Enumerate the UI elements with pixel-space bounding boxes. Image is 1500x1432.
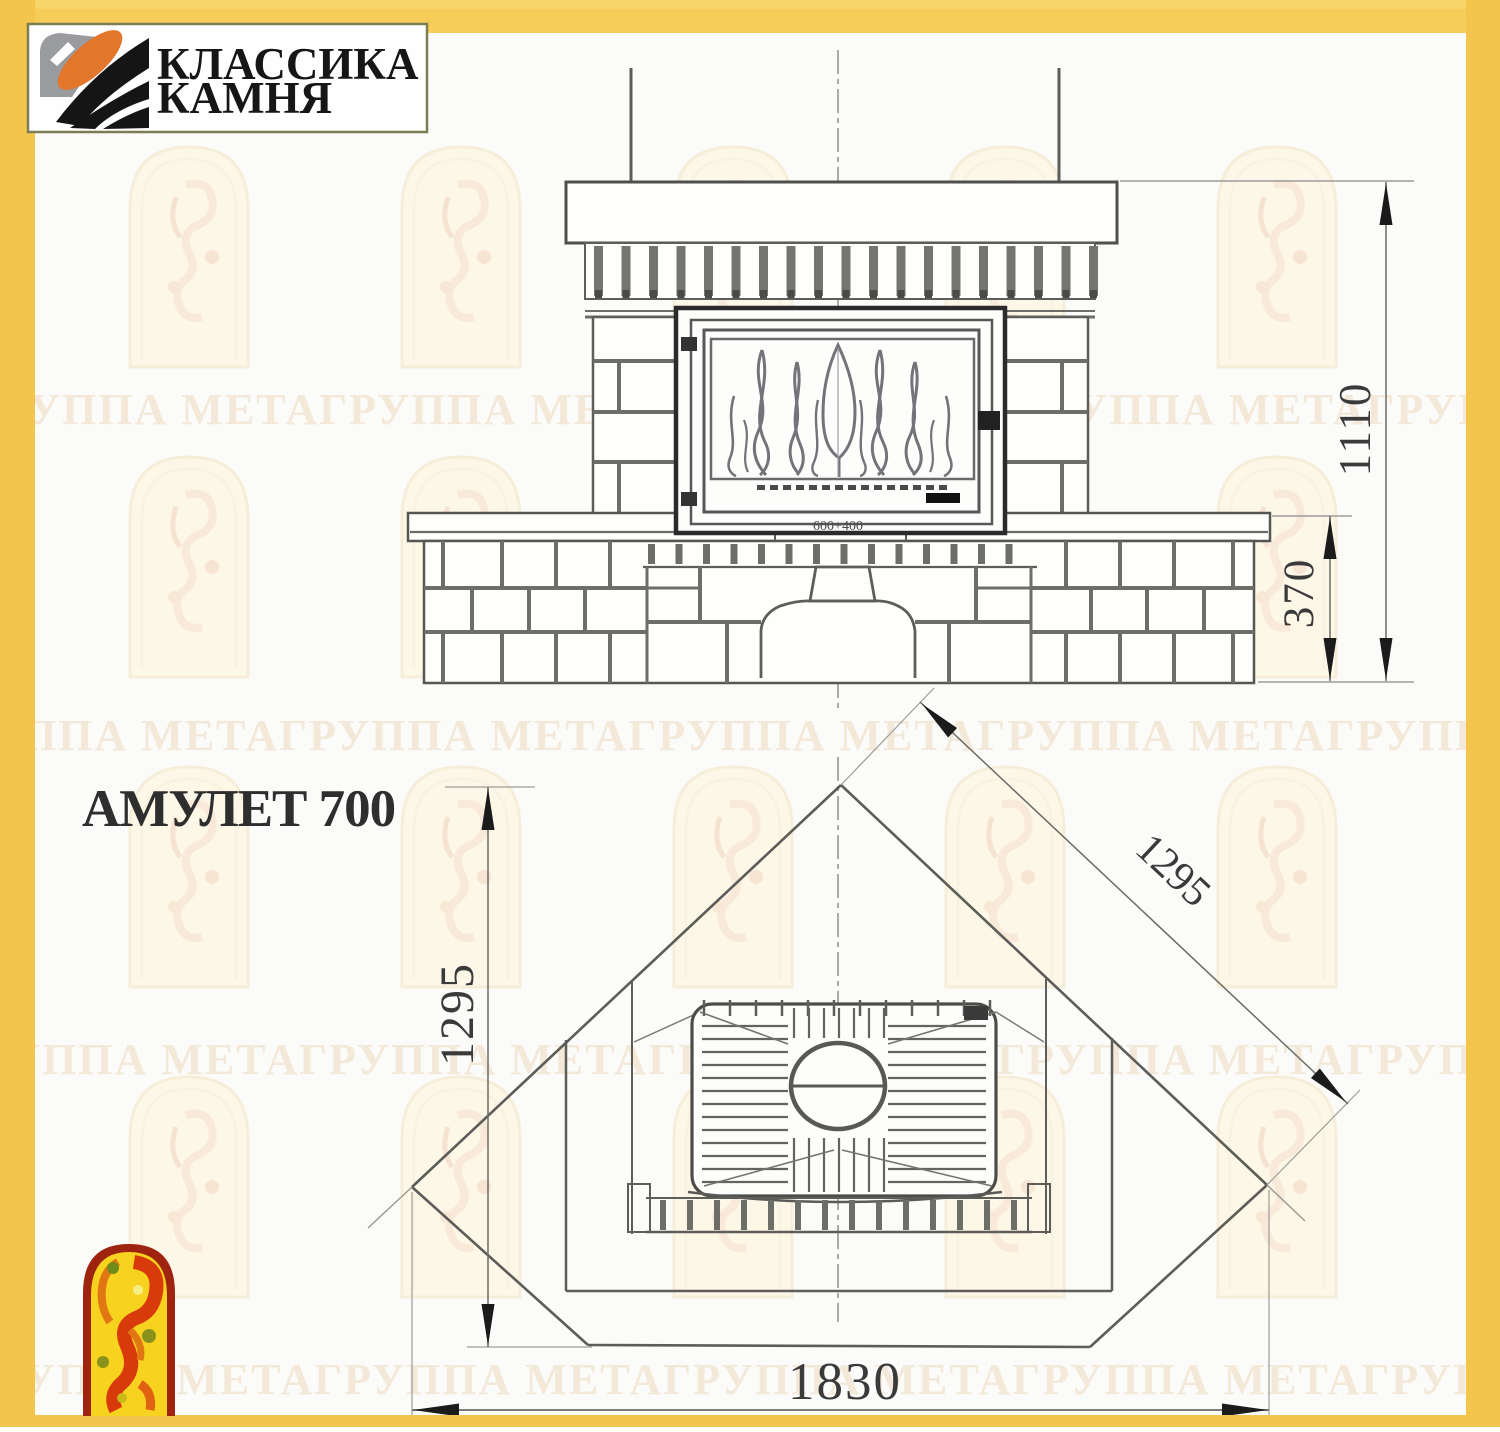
svg-text:1830: 1830: [788, 1353, 902, 1411]
svg-text:1295: 1295: [431, 962, 484, 1066]
svg-text:370: 370: [1276, 558, 1323, 629]
svg-text:ГРУППА МЕТАГРУППА МЕТАГРУППА М: ГРУППА МЕТАГРУППА МЕТАГРУППА МЕТАГРУППА …: [0, 711, 1500, 760]
svg-text:ГРУППА МЕТАГРУППА МЕТАГРУППА М: ГРУППА МЕТАГРУППА МЕТАГРУППА МЕТАГРУППА …: [0, 1355, 1500, 1404]
svg-text:АМУЛЕТ 700: АМУЛЕТ 700: [82, 780, 395, 838]
svg-text:1110: 1110: [1330, 382, 1380, 477]
svg-text:600+400: 600+400: [813, 519, 863, 534]
svg-text:КАМНЯ: КАМНЯ: [157, 73, 332, 123]
